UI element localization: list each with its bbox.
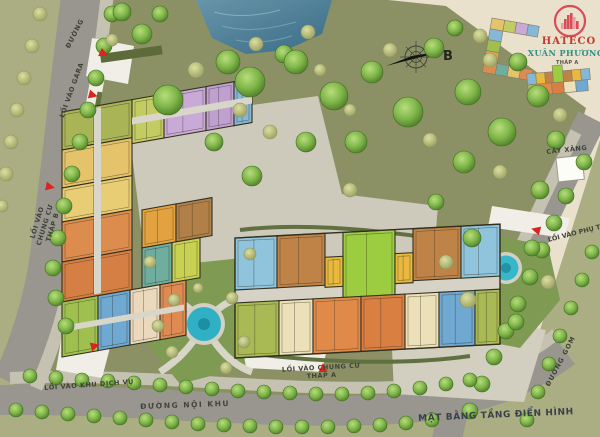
tree [361, 61, 383, 83]
tower-a [235, 224, 500, 358]
bush [263, 125, 277, 139]
tree [58, 318, 74, 334]
tree [320, 82, 348, 110]
tree [242, 166, 262, 186]
tree [393, 97, 423, 127]
bush [439, 255, 453, 269]
tree [424, 38, 444, 58]
tree [413, 381, 427, 395]
tree [165, 415, 179, 429]
tree [153, 85, 183, 115]
tree [335, 387, 349, 401]
bush [152, 320, 164, 332]
tree [345, 131, 367, 153]
tree [64, 166, 80, 182]
tree [9, 403, 23, 417]
apartment-unit [176, 198, 212, 242]
apartment-unit [475, 289, 500, 345]
tree [347, 419, 361, 433]
tree [585, 245, 599, 259]
compass-north-label: B [443, 49, 453, 65]
tree [309, 387, 323, 401]
apartment-unit [405, 292, 439, 349]
site-plan: ĐƯỜNG LỐI VÀO GARA LỐI VÀO CHUNG CƯ THÁP… [0, 0, 600, 437]
tree [48, 290, 64, 306]
tree [510, 296, 526, 312]
bush [383, 43, 397, 57]
bush [423, 133, 437, 147]
tree [217, 418, 231, 432]
bush [168, 294, 180, 306]
tree [399, 416, 413, 430]
apartment-unit [361, 294, 405, 351]
bush [188, 62, 204, 78]
bush [344, 104, 356, 116]
bush [244, 248, 256, 260]
tree [575, 273, 589, 287]
tree [488, 118, 516, 146]
bush [314, 64, 326, 76]
bush [483, 53, 497, 67]
tree [546, 215, 562, 231]
tree [531, 181, 549, 199]
bush [144, 256, 156, 268]
tree [453, 151, 475, 173]
tree [113, 3, 131, 21]
apartment-unit [142, 204, 176, 248]
tree [88, 70, 104, 86]
brand-name: HATECO [538, 36, 600, 49]
tree [531, 385, 545, 399]
apartment-unit [235, 236, 277, 290]
apartment-unit [413, 226, 461, 281]
tree [80, 102, 96, 118]
tree [522, 269, 538, 285]
tree [428, 194, 444, 210]
tree [524, 240, 540, 256]
bush [25, 39, 39, 53]
bush [249, 37, 263, 51]
bush [10, 103, 24, 117]
tree [463, 373, 477, 387]
tree [153, 378, 167, 392]
tree [373, 418, 387, 432]
tree [527, 85, 549, 107]
apartment-unit [277, 233, 325, 288]
bush [193, 283, 203, 293]
tree [35, 405, 49, 419]
tree [235, 67, 265, 97]
tree [152, 6, 168, 22]
bush [166, 346, 178, 358]
bush [17, 71, 31, 85]
tree [216, 50, 240, 74]
bush [226, 292, 238, 304]
bush [541, 275, 555, 289]
tree [576, 154, 592, 170]
tree [486, 349, 502, 365]
bush [301, 25, 315, 39]
tree [558, 188, 574, 204]
keyplan-tower-a-label: THÁP A [556, 60, 579, 66]
tree [463, 229, 481, 247]
apartment-unit [313, 296, 361, 354]
tree [295, 420, 309, 434]
apartment-unit [235, 301, 279, 358]
bush [493, 165, 507, 179]
tree [269, 420, 283, 434]
tree [139, 413, 153, 427]
bush [553, 108, 567, 122]
tree [179, 380, 193, 394]
tree [455, 79, 481, 105]
tree [447, 20, 463, 36]
tree [257, 385, 271, 399]
bush [106, 34, 118, 46]
tree [72, 134, 88, 150]
tree [132, 24, 152, 44]
tree [439, 377, 453, 391]
tree [508, 314, 524, 330]
tree [23, 369, 37, 383]
bush [4, 135, 18, 149]
tree [283, 386, 297, 400]
tree [231, 384, 245, 398]
tree [113, 411, 127, 425]
tree [284, 50, 308, 74]
tree [61, 407, 75, 421]
bush [238, 336, 250, 348]
bush [220, 362, 232, 374]
tree [321, 420, 335, 434]
bush [33, 7, 47, 21]
tree [205, 133, 223, 151]
bush [460, 292, 476, 308]
bush [473, 29, 487, 43]
tree [564, 301, 578, 315]
apartment-unit [279, 299, 313, 356]
tree [361, 386, 375, 400]
tree [553, 329, 567, 343]
bush [343, 183, 357, 197]
tree [87, 409, 101, 423]
bush [0, 167, 13, 181]
apartment-unit [172, 238, 200, 283]
tree [45, 260, 61, 276]
tree [387, 384, 401, 398]
tree [243, 419, 257, 433]
tree [296, 132, 316, 152]
bush [233, 103, 247, 117]
brand-subname: XUÂN PHƯƠNG [524, 48, 600, 58]
tree [205, 382, 219, 396]
tree [191, 417, 205, 431]
